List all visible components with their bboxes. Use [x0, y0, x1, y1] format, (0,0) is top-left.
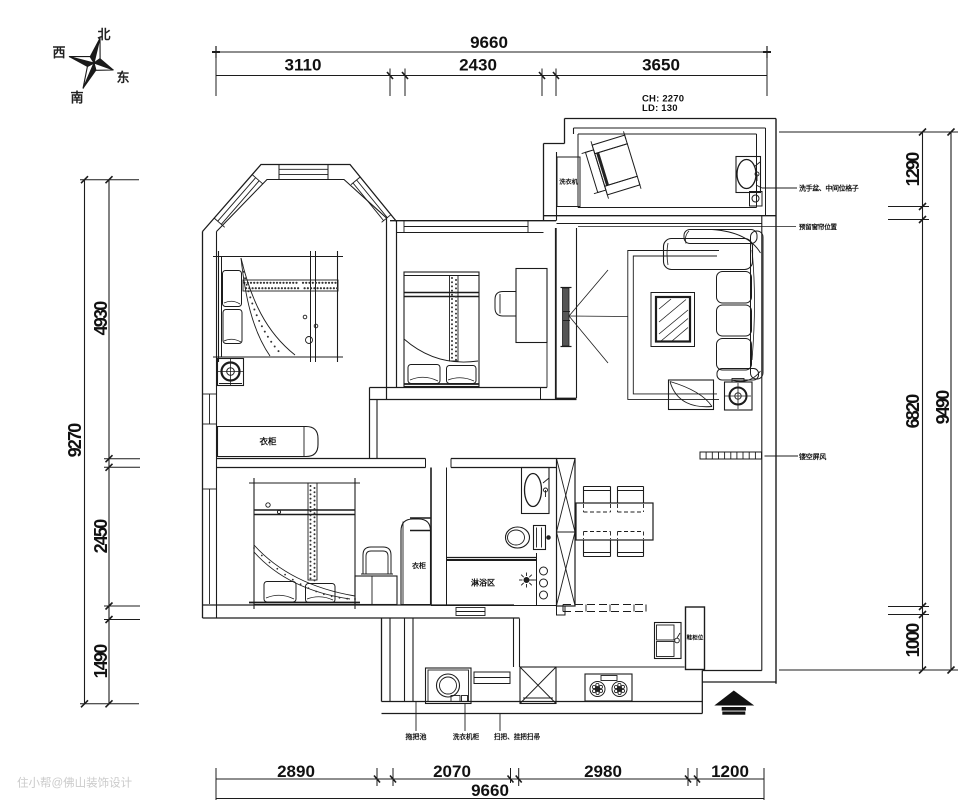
svg-text:1290: 1290	[903, 152, 923, 187]
svg-text:东: 东	[116, 70, 129, 85]
svg-text:9660: 9660	[470, 33, 508, 52]
svg-text:拖把池: 拖把池	[406, 732, 427, 741]
svg-text:洗手盆、中间位格子: 洗手盆、中间位格子	[799, 184, 859, 193]
svg-text:1000: 1000	[903, 623, 923, 658]
svg-text:3110: 3110	[285, 56, 322, 75]
svg-text:洗衣机柜: 洗衣机柜	[453, 732, 480, 741]
svg-text:南: 南	[70, 90, 83, 105]
svg-text:9660: 9660	[471, 781, 509, 800]
svg-text:1200: 1200	[711, 762, 749, 781]
svg-text:西: 西	[52, 45, 65, 60]
svg-text:2430: 2430	[459, 56, 497, 75]
svg-text:2890: 2890	[277, 762, 315, 781]
svg-text:9490: 9490	[933, 390, 953, 425]
svg-text:衣柜: 衣柜	[412, 561, 426, 570]
svg-text:4930: 4930	[91, 301, 111, 336]
svg-text:镂空屏风: 镂空屏风	[798, 452, 826, 461]
svg-text:淋浴区: 淋浴区	[471, 578, 495, 588]
svg-text:LD: 130: LD: 130	[642, 103, 678, 114]
svg-text:2450: 2450	[91, 519, 111, 554]
svg-text:北: 北	[97, 27, 110, 42]
svg-text:预留窗帘位置: 预留窗帘位置	[799, 222, 838, 231]
svg-text:2070: 2070	[433, 762, 471, 781]
svg-text:3650: 3650	[642, 56, 680, 75]
svg-text:洗衣机: 洗衣机	[559, 178, 578, 186]
svg-text:鞋柜位: 鞋柜位	[687, 634, 704, 642]
svg-text:9270: 9270	[65, 423, 85, 458]
svg-text:衣柜: 衣柜	[259, 437, 277, 447]
svg-text:扫把、挂把扫帚: 扫把、挂把扫帚	[494, 732, 541, 741]
svg-text:住小帮@佛山装饰设计: 住小帮@佛山装饰设计	[17, 776, 133, 790]
svg-text:2980: 2980	[584, 762, 622, 781]
svg-text:1490: 1490	[91, 644, 111, 679]
svg-text:6820: 6820	[903, 394, 923, 429]
